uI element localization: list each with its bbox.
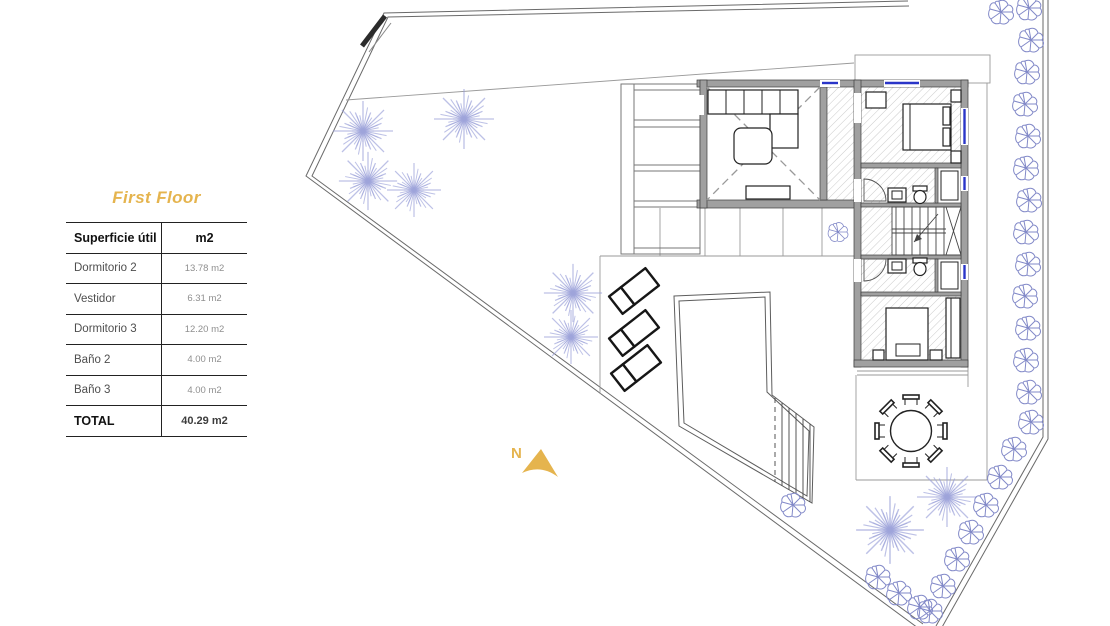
entrance-gate <box>362 16 391 52</box>
table-total-row: TOTAL40.29 m2 <box>66 405 247 436</box>
table-row: Baño 34.00 m2 <box>66 375 247 406</box>
area-table: Superficie útilm2Dormitorio 213.78 m2Ves… <box>66 222 247 437</box>
table-header-row: Superficie útilm2 <box>66 222 247 253</box>
row-value: 6.31 m2 <box>161 284 247 314</box>
closet <box>946 298 960 358</box>
bench <box>746 186 790 199</box>
nightstand <box>951 151 961 163</box>
row-label: Superficie útil <box>66 223 161 253</box>
area-panel: First Floor Superficie útilm2Dormitorio … <box>66 188 247 437</box>
row-label: Dormitorio 3 <box>66 315 161 345</box>
north-arrow: N <box>511 445 558 477</box>
sink <box>888 259 906 273</box>
row-value: 4.00 m2 <box>161 376 247 406</box>
row-value: 13.78 m2 <box>161 254 247 284</box>
row-label: Baño 3 <box>66 376 161 406</box>
living-room <box>707 87 820 200</box>
row-value: 4.00 m2 <box>161 345 247 375</box>
panel-title: First Floor <box>66 188 247 208</box>
table-row: Dormitorio 213.78 m2 <box>66 253 247 284</box>
sink <box>888 188 906 202</box>
north-label: N <box>511 445 522 462</box>
sun-loungers <box>609 268 661 391</box>
nightstand <box>951 90 961 102</box>
page: { "panel": { "title": "First Floor", "ta… <box>0 0 1110 626</box>
row-value: 12.20 m2 <box>161 315 247 345</box>
pergola-deck <box>621 84 700 254</box>
row-value: 40.29 m2 <box>161 406 247 436</box>
room-vestidor <box>827 87 854 200</box>
row-label: Dormitorio 2 <box>66 254 161 284</box>
row-value: m2 <box>161 223 247 253</box>
nightstand <box>873 350 884 360</box>
dining-table <box>875 395 947 467</box>
table-row: Baño 24.00 m2 <box>66 344 247 375</box>
north-arrow-icon <box>522 449 558 477</box>
swimming-pool <box>674 292 814 503</box>
table-row: Dormitorio 312.20 m2 <box>66 314 247 345</box>
row-label: Vestidor <box>66 284 161 314</box>
row-label: Baño 2 <box>66 345 161 375</box>
coffee-table <box>734 128 772 164</box>
wardrobe <box>866 92 886 108</box>
table-row: Vestidor6.31 m2 <box>66 283 247 314</box>
row-label: TOTAL <box>66 406 161 436</box>
nightstand <box>930 350 942 360</box>
